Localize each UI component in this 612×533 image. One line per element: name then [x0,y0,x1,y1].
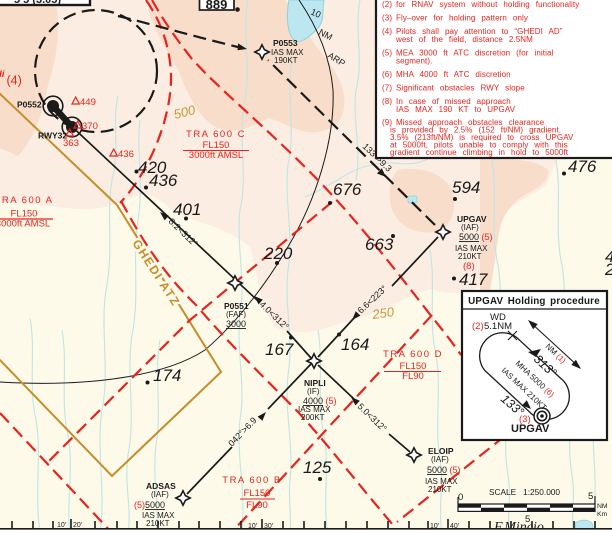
svg-text:MHA 4000 ft ATC discretion: MHA 4000 ft ATC discretion [396,70,511,79]
svg-text:401: 401 [173,200,201,219]
svg-text:(6): (6) [382,70,392,79]
svg-text:(2): (2) [472,321,484,332]
svg-text:663: 663 [365,235,394,254]
svg-text:363: 363 [63,138,79,149]
svg-text:594: 594 [452,178,480,197]
svg-text:210KT: 210KT [428,485,452,494]
svg-text:(IAF): (IAF) [151,490,169,499]
svg-text:SCALE 1:250.000: SCALE 1:250.000 [489,487,560,497]
svg-text:200KT: 200KT [301,413,325,422]
svg-text:(3): (3) [382,14,392,23]
svg-text:gradient continue climbing in: gradient continue climbing in hold to 50… [390,148,569,157]
svg-text:5 5 (3.05): 5 5 (3.05) [14,0,61,6]
svg-text:40′: 40′ [450,523,460,530]
svg-text:FL150: FL150 [244,488,271,499]
svg-text:10′: 10′ [248,523,258,530]
svg-text:449: 449 [80,97,96,108]
svg-text:west of the field, distance 2.: west of the field, distance 2.5NM [395,35,533,44]
svg-text:220: 220 [263,244,293,263]
svg-text:210KT: 210KT [458,252,482,261]
svg-text:(IAF): (IAF) [461,223,479,232]
svg-text:(IAF): (IAF) [431,455,449,464]
svg-text:5000 (5): 5000 (5) [427,465,461,475]
svg-text:174: 174 [153,366,181,385]
svg-text:for RNAV system without holdin: for RNAV system without holding function… [396,0,579,9]
svg-text:segment).: segment). [396,57,432,66]
svg-text:125: 125 [303,458,332,477]
svg-text:Km: Km [597,511,608,518]
svg-text:P0552: P0552 [17,100,42,110]
svg-text:20′: 20′ [73,522,83,529]
svg-text:(IF): (IF) [307,387,320,396]
svg-text:TRA 600 B: TRA 600 B [222,475,281,486]
svg-text:3000ft AMSL: 3000ft AMSL [189,150,243,161]
svg-text:2: 2 [604,260,612,279]
svg-text:167: 167 [265,340,294,359]
svg-text:FL90: FL90 [246,500,268,511]
svg-text:3000: 3000 [226,319,246,329]
svg-text:TRA 600 C: TRA 600 C [186,129,246,140]
svg-text:476: 476 [568,157,597,176]
svg-text:370: 370 [82,121,98,132]
svg-text:10′: 10′ [57,522,67,529]
svg-text:(FAF): (FAF) [226,310,246,319]
svg-text:di: di [0,69,5,80]
svg-text:Significant obstacles RWY slop: Significant obstacles RWY slope [396,84,525,93]
svg-text:(5)5000: (5)5000 [134,500,165,510]
svg-text:889: 889 [206,0,228,12]
svg-text:(5): (5) [382,49,392,58]
svg-text:30′: 30′ [264,523,274,530]
svg-text:10′: 10′ [430,523,440,530]
svg-text:TRA 600 D: TRA 600 D [383,349,443,360]
svg-text:164: 164 [341,335,369,354]
svg-text:UPGAV: UPGAV [511,423,550,435]
svg-text:(4): (4) [7,74,22,88]
svg-text:5000 (5): 5000 (5) [459,232,493,242]
svg-text:P0553: P0553 [273,38,298,48]
svg-text:3000ft AMSL: 3000ft AMSL [0,219,50,230]
svg-text:5.1NM: 5.1NM [484,321,512,332]
svg-text:(7): (7) [382,84,392,93]
svg-text:IAS MAX 190 KT to UPGAV: IAS MAX 190 KT to UPGAV [396,105,516,114]
svg-text:676: 676 [333,180,362,199]
svg-text:436: 436 [149,171,178,190]
svg-text:(4): (4) [382,27,392,36]
svg-text:(8): (8) [382,97,392,106]
svg-text:(2): (2) [382,0,392,9]
svg-text:FL90: FL90 [402,371,424,382]
svg-text:436: 436 [118,149,134,160]
svg-text:UPGAV Holding procedure: UPGAV Holding procedure [468,296,600,307]
svg-text:TRA 600 A: TRA 600 A [0,195,53,206]
svg-text:190KT: 190KT [274,56,298,65]
svg-text:5: 5 [588,491,593,502]
svg-text:NM: NM [597,503,608,510]
svg-text:Fly–over for holding pattern o: Fly–over for holding pattern only [396,14,528,23]
svg-text:417: 417 [459,270,488,289]
svg-text:0: 0 [458,492,463,503]
